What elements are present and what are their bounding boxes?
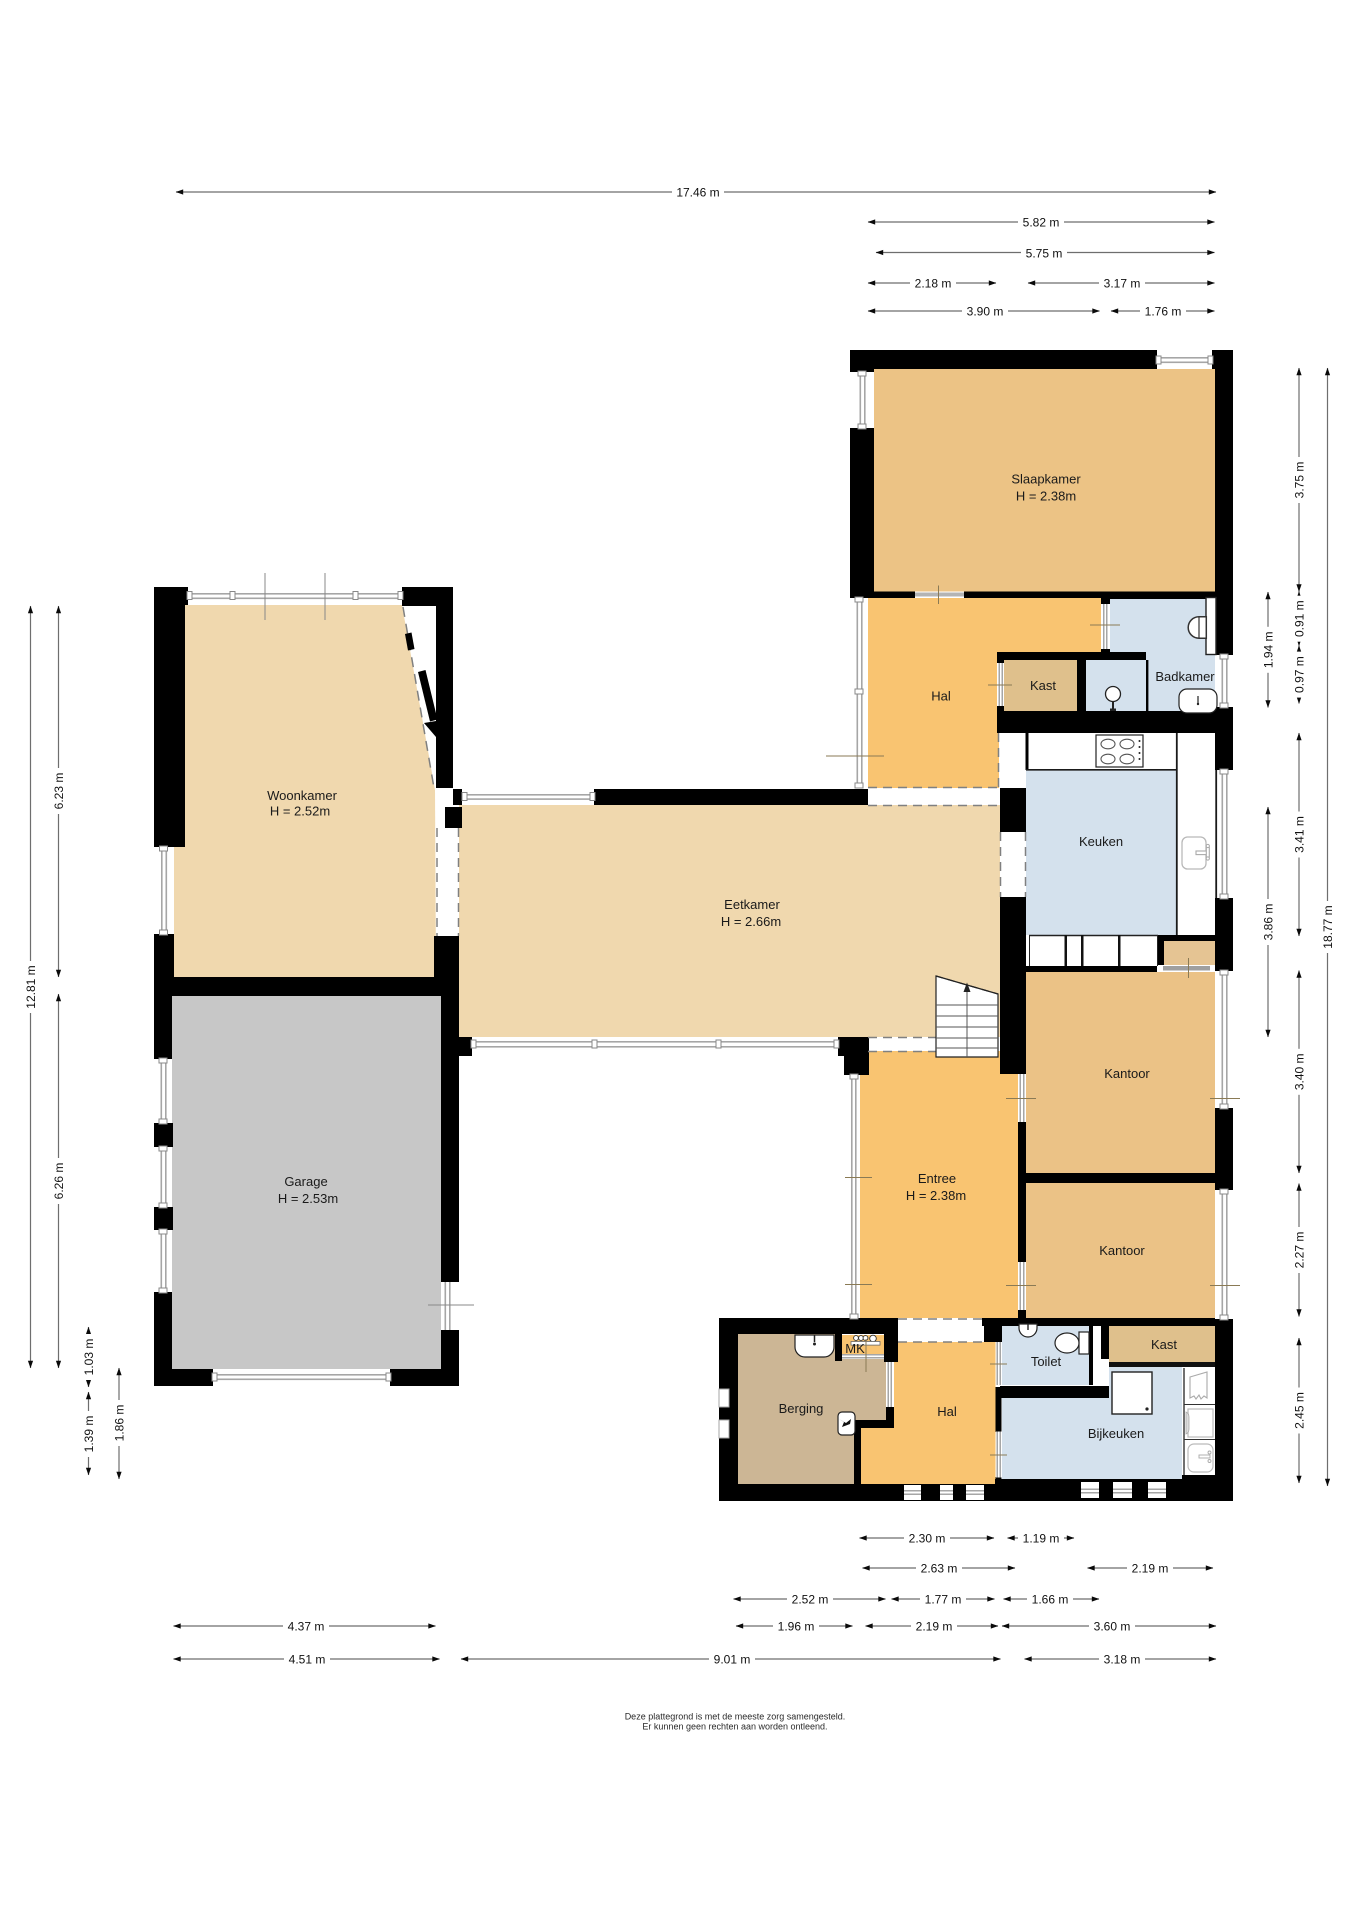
svg-text:Er kunnen geen rechten aan wor: Er kunnen geen rechten aan worden ontlee… <box>642 1722 827 1732</box>
svg-text:Kast: Kast <box>1151 1337 1177 1352</box>
svg-text:Toilet: Toilet <box>1031 1354 1062 1369</box>
svg-text:4.51 m: 4.51 m <box>289 1653 326 1667</box>
svg-text:17.46 m: 17.46 m <box>676 186 719 200</box>
svg-text:2.19 m: 2.19 m <box>1132 1562 1169 1576</box>
svg-text:1.19 m: 1.19 m <box>1023 1532 1060 1546</box>
svg-text:3.17 m: 3.17 m <box>1104 277 1141 291</box>
svg-text:1.39 m: 1.39 m <box>82 1416 96 1453</box>
svg-text:12.81 m: 12.81 m <box>24 965 38 1008</box>
svg-text:Deze plattegrond is met de mee: Deze plattegrond is met de meeste zorg s… <box>625 1712 846 1722</box>
svg-text:2.18 m: 2.18 m <box>915 277 952 291</box>
svg-text:Kantoor: Kantoor <box>1104 1066 1150 1081</box>
svg-text:1.86 m: 1.86 m <box>113 1405 127 1442</box>
svg-text:H = 2.66m: H = 2.66m <box>721 914 781 929</box>
svg-text:Garage: Garage <box>284 1174 327 1189</box>
svg-text:6.26 m: 6.26 m <box>52 1163 66 1200</box>
svg-text:2.63 m: 2.63 m <box>921 1562 958 1576</box>
svg-text:0.97 m: 0.97 m <box>1293 656 1307 693</box>
svg-text:0.91 m: 0.91 m <box>1293 600 1307 637</box>
svg-text:2.27 m: 2.27 m <box>1293 1232 1307 1269</box>
svg-text:1.66 m: 1.66 m <box>1032 1593 1069 1607</box>
svg-text:Kantoor: Kantoor <box>1099 1243 1145 1258</box>
svg-text:5.82 m: 5.82 m <box>1023 216 1060 230</box>
svg-text:Keuken: Keuken <box>1079 834 1123 849</box>
svg-text:6.23 m: 6.23 m <box>52 773 66 810</box>
svg-text:1.03 m: 1.03 m <box>82 1339 96 1376</box>
svg-text:3.18 m: 3.18 m <box>1104 1653 1141 1667</box>
svg-text:Berging: Berging <box>779 1401 824 1416</box>
svg-text:H = 2.38m: H = 2.38m <box>1016 489 1076 504</box>
svg-text:2.52 m: 2.52 m <box>792 1593 829 1607</box>
svg-text:2.30 m: 2.30 m <box>909 1532 946 1546</box>
svg-text:3.75 m: 3.75 m <box>1293 462 1307 499</box>
svg-text:Bijkeuken: Bijkeuken <box>1088 1426 1144 1441</box>
svg-text:H = 2.52m: H = 2.52m <box>270 804 330 819</box>
svg-text:1.94 m: 1.94 m <box>1262 631 1276 668</box>
svg-text:Eetkamer: Eetkamer <box>724 897 780 912</box>
svg-text:Woonkamer: Woonkamer <box>267 788 338 803</box>
svg-text:1.77 m: 1.77 m <box>925 1593 962 1607</box>
svg-text:Hal: Hal <box>937 1404 957 1419</box>
svg-text:Entree: Entree <box>918 1171 956 1186</box>
svg-text:18.77 m: 18.77 m <box>1321 905 1335 948</box>
svg-text:3.90 m: 3.90 m <box>967 305 1004 319</box>
svg-text:1.96 m: 1.96 m <box>778 1620 815 1634</box>
svg-text:3.86 m: 3.86 m <box>1262 904 1276 941</box>
svg-text:H = 2.53m: H = 2.53m <box>278 1191 338 1206</box>
svg-text:1.76 m: 1.76 m <box>1145 305 1182 319</box>
svg-text:2.19 m: 2.19 m <box>916 1620 953 1634</box>
svg-text:4.37 m: 4.37 m <box>288 1620 325 1634</box>
svg-text:Kast: Kast <box>1030 678 1056 693</box>
svg-text:9.01 m: 9.01 m <box>714 1653 751 1667</box>
svg-text:Slaapkamer: Slaapkamer <box>1011 472 1081 487</box>
svg-text:2.45 m: 2.45 m <box>1293 1392 1307 1429</box>
svg-text:H = 2.38m: H = 2.38m <box>906 1188 966 1203</box>
svg-text:Hal: Hal <box>931 689 951 704</box>
svg-text:MK: MK <box>845 1341 865 1356</box>
svg-text:5.75 m: 5.75 m <box>1026 247 1063 261</box>
svg-text:3.40 m: 3.40 m <box>1293 1053 1307 1090</box>
svg-text:3.60 m: 3.60 m <box>1094 1620 1131 1634</box>
svg-text:3.41 m: 3.41 m <box>1293 816 1307 853</box>
svg-text:Badkamer: Badkamer <box>1155 669 1215 684</box>
